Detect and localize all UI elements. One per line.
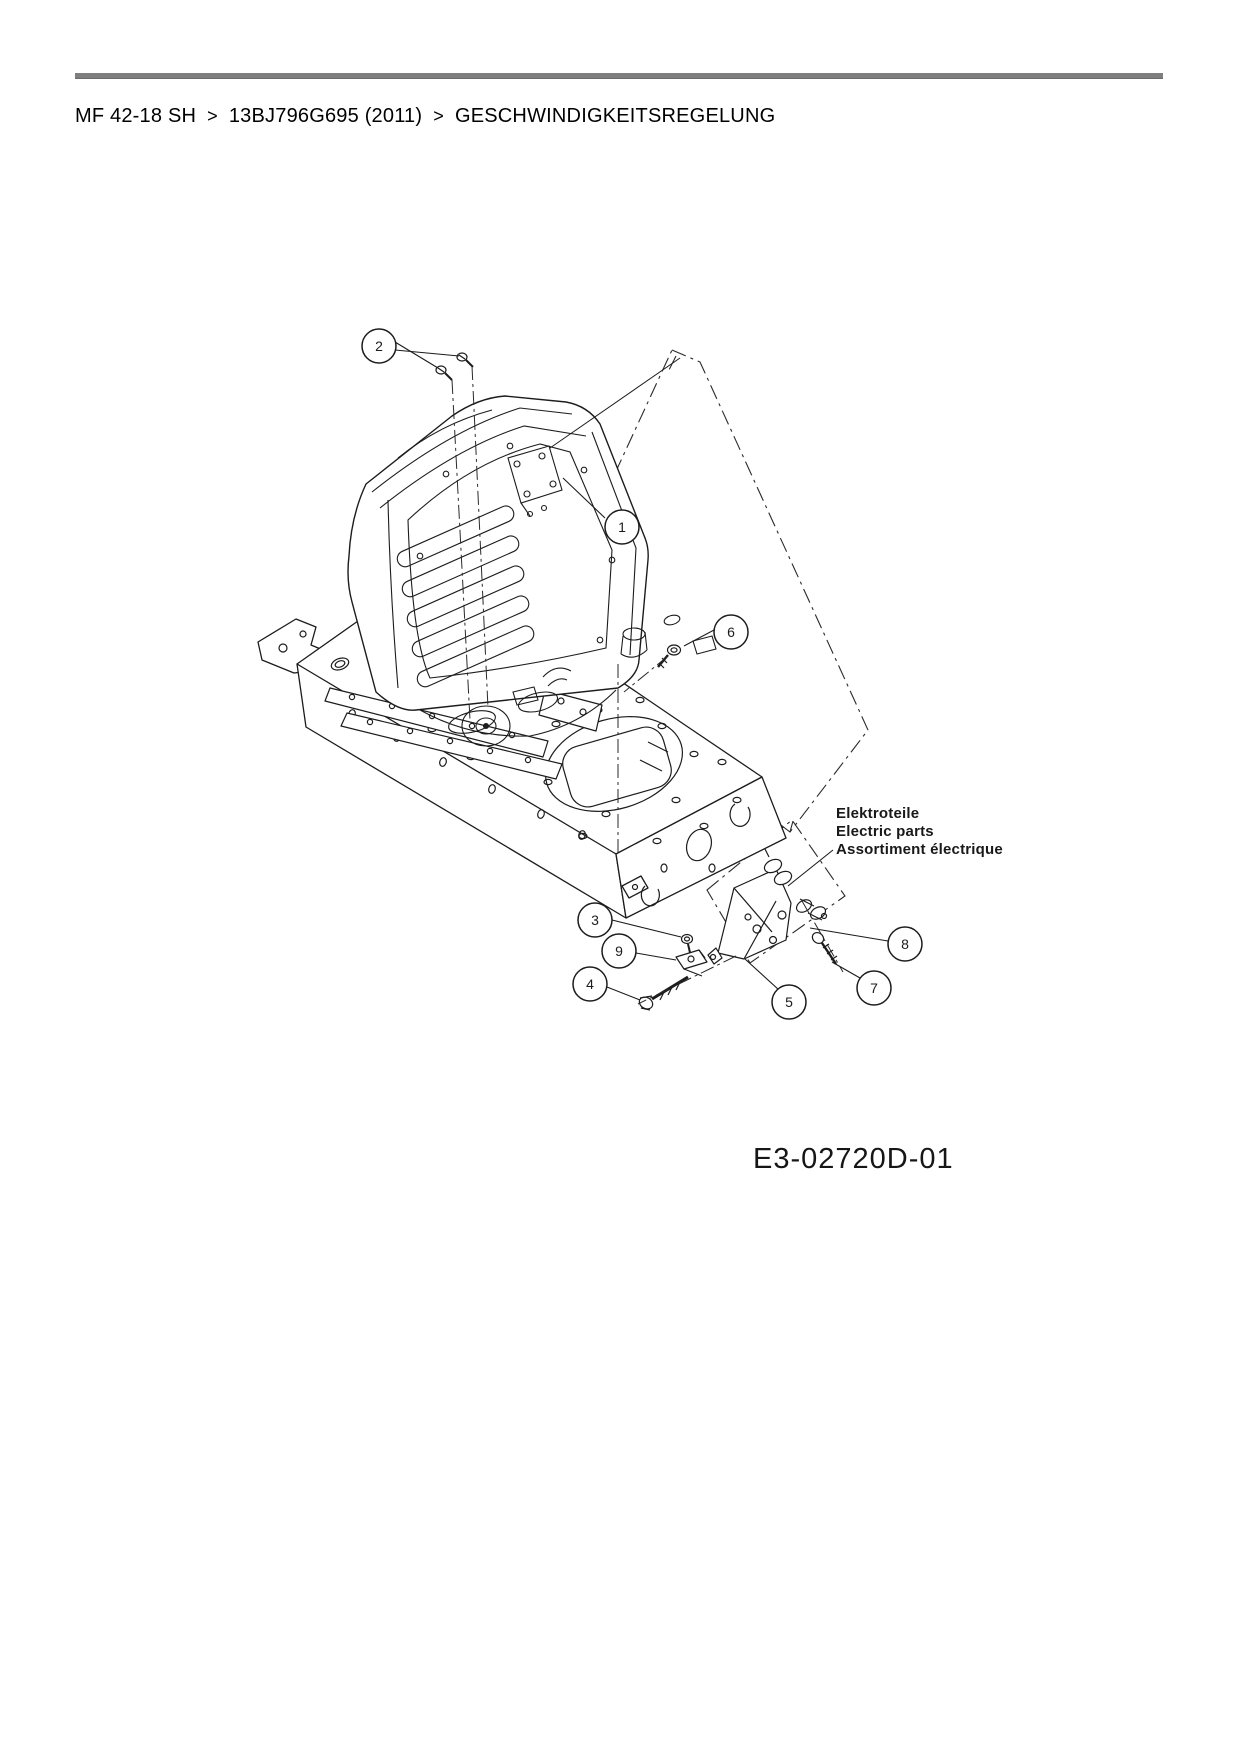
callout-9: 9	[602, 934, 636, 968]
svg-text:8: 8	[901, 936, 909, 952]
svg-text:4: 4	[586, 976, 594, 992]
svg-text:2: 2	[375, 338, 383, 354]
spacer-part-8	[794, 897, 827, 922]
svg-text:9: 9	[615, 943, 623, 959]
callout-1: 1	[605, 510, 639, 544]
bolt-part-4	[637, 977, 688, 1011]
callout-3: 3	[578, 903, 612, 937]
svg-text:7: 7	[870, 980, 878, 996]
group-label-line-en: Electric parts	[836, 823, 934, 840]
group-label-line-fr: Assortiment électrique	[836, 841, 1003, 858]
callout-7: 7	[857, 971, 891, 1005]
svg-text:1: 1	[618, 519, 626, 535]
seat-assembly	[348, 396, 648, 710]
drawing-code: E3-02720D-01	[753, 1143, 954, 1175]
callout-8: 8	[888, 927, 922, 961]
screws-part-2	[436, 353, 473, 380]
screw-part-6	[658, 645, 681, 668]
svg-text:6: 6	[727, 624, 735, 640]
callout-5: 5	[772, 985, 806, 1019]
parts-catalog-page: { "page": { "background": "#ffffff", "ru…	[0, 0, 1240, 1754]
callout-2: 2	[362, 329, 396, 363]
svg-text:5: 5	[785, 994, 793, 1010]
svg-text:3: 3	[591, 912, 599, 928]
screw-part-7	[810, 930, 837, 964]
exploded-parts-diagram: 1 2 3 4 5 6 7 8 9 Elektroteile Electric …	[0, 0, 1240, 1754]
group-label-line-de: Elektroteile	[836, 805, 919, 822]
callout-4: 4	[573, 967, 607, 1001]
callout-6: 6	[714, 615, 748, 649]
group-label-leader	[788, 850, 833, 886]
